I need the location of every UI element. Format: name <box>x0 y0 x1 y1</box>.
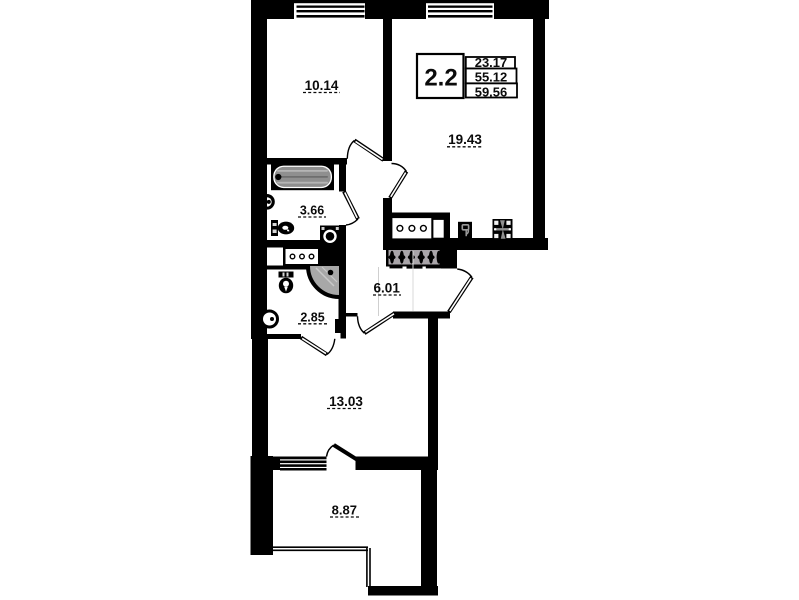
svg-text:55.12: 55.12 <box>475 70 508 85</box>
svg-text:6.01: 6.01 <box>374 281 401 296</box>
svg-text:19.43: 19.43 <box>448 132 482 147</box>
svg-text:23.17: 23.17 <box>475 55 508 70</box>
svg-text:10.14: 10.14 <box>305 78 339 93</box>
svg-text:8.87: 8.87 <box>332 503 357 518</box>
svg-text:3.66: 3.66 <box>300 204 324 218</box>
svg-text:13.03: 13.03 <box>329 394 363 409</box>
svg-text:2.2: 2.2 <box>424 65 457 92</box>
svg-text:59.56: 59.56 <box>475 85 508 100</box>
svg-text:2.85: 2.85 <box>300 310 324 324</box>
